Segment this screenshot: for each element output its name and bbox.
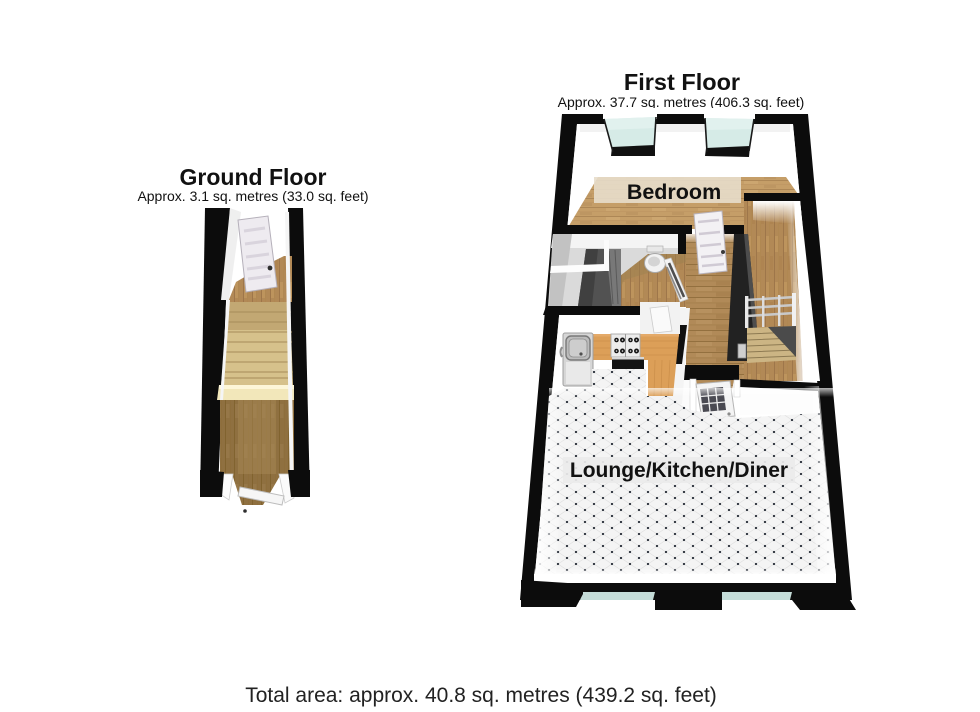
svg-text:Lounge/Kitchen/Diner: Lounge/Kitchen/Diner — [570, 459, 788, 482]
svg-text:Approx. 3.1 sq. metres (33.0 s: Approx. 3.1 sq. metres (33.0 sq. feet) — [137, 188, 368, 204]
svg-text:Bedroom: Bedroom — [627, 180, 721, 204]
svg-text:Total area: approx. 40.8 sq. m: Total area: approx. 40.8 sq. metres (439… — [245, 684, 717, 707]
svg-text:First Floor: First Floor — [624, 69, 740, 95]
svg-text:Approx. 37.7 sq. metres (406.3: Approx. 37.7 sq. metres (406.3 sq. feet) — [558, 94, 805, 110]
svg-text:Ground Floor: Ground Floor — [180, 164, 327, 190]
